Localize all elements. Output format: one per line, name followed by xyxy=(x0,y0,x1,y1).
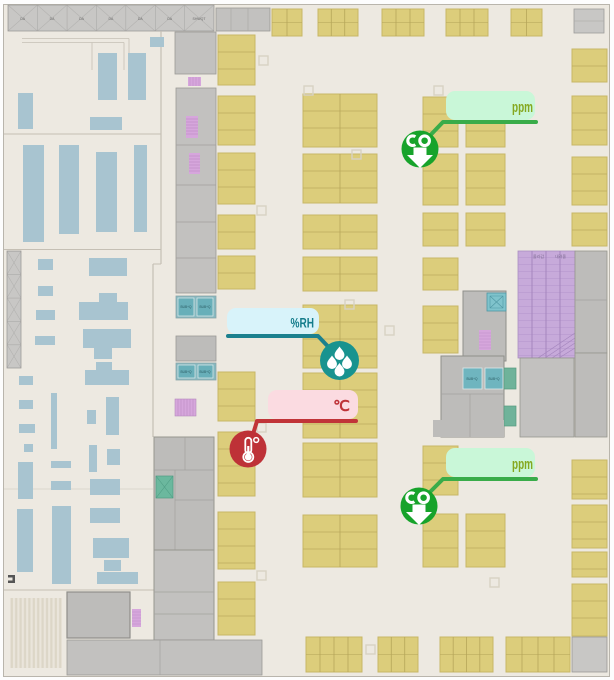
svg-text:%RH: %RH xyxy=(291,316,315,331)
svg-text:ppm: ppm xyxy=(512,456,533,473)
svg-text:BUB+Q: BUB+Q xyxy=(181,370,192,374)
svg-text:BUB+Q: BUB+Q xyxy=(181,305,192,309)
svg-text:DA: DA xyxy=(50,17,56,21)
svg-text:SHWQT: SHWQT xyxy=(192,17,206,21)
svg-text:DA: DA xyxy=(108,17,114,21)
svg-text:올라감: 올라감 xyxy=(533,253,544,259)
svg-text:DA: DA xyxy=(79,17,85,21)
svg-text:BUB+Q: BUB+Q xyxy=(467,377,478,381)
svg-text:내려올: 내려올 xyxy=(555,253,566,259)
svg-text:DA: DA xyxy=(20,17,26,21)
svg-text:DA: DA xyxy=(167,17,173,21)
svg-text:BUB+Q: BUB+Q xyxy=(200,370,211,374)
svg-text:DA: DA xyxy=(138,17,144,21)
svg-text:℃: ℃ xyxy=(333,398,350,415)
svg-text:ppm: ppm xyxy=(512,99,533,116)
svg-text:BUB+Q: BUB+Q xyxy=(489,377,500,381)
svg-text:BUB+Q: BUB+Q xyxy=(200,305,211,309)
